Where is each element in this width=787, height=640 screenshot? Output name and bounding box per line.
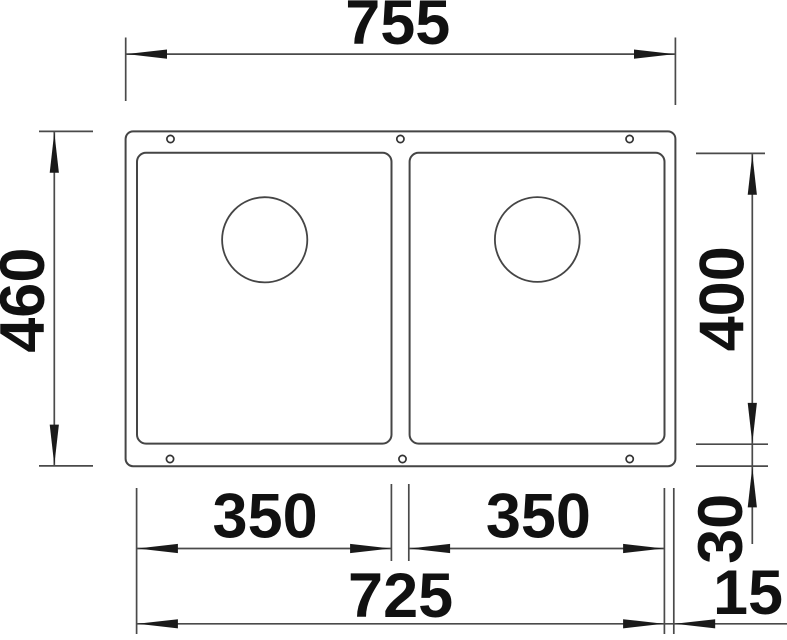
svg-text:350: 350 [213,481,318,551]
svg-text:755: 755 [345,0,450,58]
svg-text:350: 350 [486,481,591,551]
svg-text:725: 725 [348,561,453,631]
svg-text:400: 400 [688,246,758,351]
svg-text:460: 460 [0,248,58,353]
svg-text:15: 15 [713,558,783,628]
svg-text:30: 30 [686,494,756,564]
